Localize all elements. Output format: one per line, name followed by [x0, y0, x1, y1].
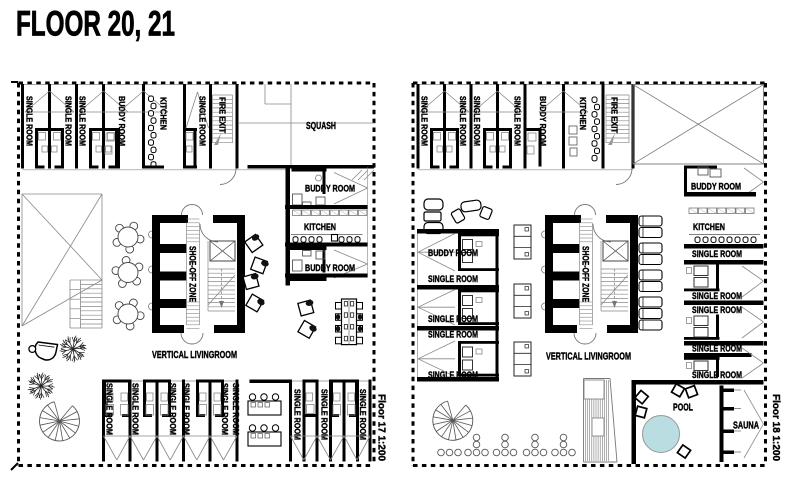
svg-text:BUDDY ROOM: BUDDY ROOM: [428, 248, 478, 259]
svg-text:SAUNA: SAUNA: [733, 421, 759, 432]
svg-text:SINGLE ROOM: SINGLE ROOM: [231, 383, 241, 435]
svg-text:SHOE-OFF ZONE: SHOE-OFF ZONE: [581, 246, 591, 302]
svg-text:SINGLE ROOM: SINGLE ROOM: [692, 291, 742, 302]
svg-text:SHOE-OFF ZONE: SHOE-OFF ZONE: [188, 246, 198, 302]
svg-text:SINGLE ROOM: SINGLE ROOM: [182, 383, 192, 435]
svg-text:VERTICAL LIVINGROOM: VERTICAL LIVINGROOM: [546, 351, 631, 363]
svg-text:BUDDY ROOM: BUDDY ROOM: [691, 182, 741, 193]
svg-text:SINGLE ROOM: SINGLE ROOM: [293, 389, 303, 440]
svg-text:SINGLE ROOM: SINGLE ROOM: [131, 383, 141, 435]
svg-text:KITCHEN: KITCHEN: [578, 97, 588, 130]
svg-text:SINGLE ROOM: SINGLE ROOM: [220, 383, 230, 435]
svg-text:KITCHEN: KITCHEN: [304, 222, 336, 233]
svg-text:SINGLE ROOM: SINGLE ROOM: [692, 249, 742, 260]
svg-text:SINGLE ROOM: SINGLE ROOM: [428, 274, 478, 285]
svg-text:SINGLE ROOM: SINGLE ROOM: [692, 305, 742, 316]
svg-text:VERTICAL LIVINGROOM: VERTICAL LIVINGROOM: [152, 349, 237, 361]
svg-text:SINGLE ROOM: SINGLE ROOM: [78, 96, 88, 146]
svg-text:FIRE EXIT: FIRE EXIT: [218, 97, 228, 134]
svg-text:SQUASH: SQUASH: [306, 120, 336, 132]
svg-text:SINGLE ROOM: SINGLE ROOM: [428, 314, 478, 325]
svg-text:SINGLE ROOM: SINGLE ROOM: [458, 96, 468, 146]
svg-text:Floor 18 1:200: Floor 18 1:200: [770, 394, 781, 461]
svg-text:SINGLE ROOM: SINGLE ROOM: [358, 389, 368, 440]
svg-text:BUDDY ROOM: BUDDY ROOM: [305, 184, 355, 195]
svg-text:SINGLE ROOM: SINGLE ROOM: [64, 96, 74, 146]
svg-text:BUDDY ROOM: BUDDY ROOM: [305, 263, 355, 274]
svg-text:Floor 17 1:200: Floor 17 1:200: [376, 394, 387, 461]
svg-text:SINGLE ROOM: SINGLE ROOM: [513, 96, 523, 146]
svg-text:SINGLE ROOM: SINGLE ROOM: [168, 383, 178, 435]
svg-text:KITCHEN: KITCHEN: [693, 222, 725, 233]
svg-text:FIRE EXIT: FIRE EXIT: [610, 97, 620, 134]
svg-text:SINGLE ROOM: SINGLE ROOM: [25, 96, 35, 146]
svg-text:SINGLE ROOM: SINGLE ROOM: [105, 383, 115, 435]
svg-text:POOL: POOL: [673, 403, 693, 414]
svg-text:SINGLE ROOM: SINGLE ROOM: [472, 96, 482, 146]
svg-text:SINGLE ROOM: SINGLE ROOM: [692, 370, 742, 381]
svg-text:KITCHEN: KITCHEN: [159, 97, 169, 130]
svg-text:SINGLE ROOM: SINGLE ROOM: [320, 389, 330, 440]
svg-text:SINGLE ROOM: SINGLE ROOM: [428, 330, 478, 341]
svg-text:FLOOR 20, 21: FLOOR 20, 21: [16, 5, 175, 44]
svg-text:SINGLE ROOM: SINGLE ROOM: [420, 96, 430, 146]
svg-text:SINGLE ROOM: SINGLE ROOM: [198, 96, 208, 146]
